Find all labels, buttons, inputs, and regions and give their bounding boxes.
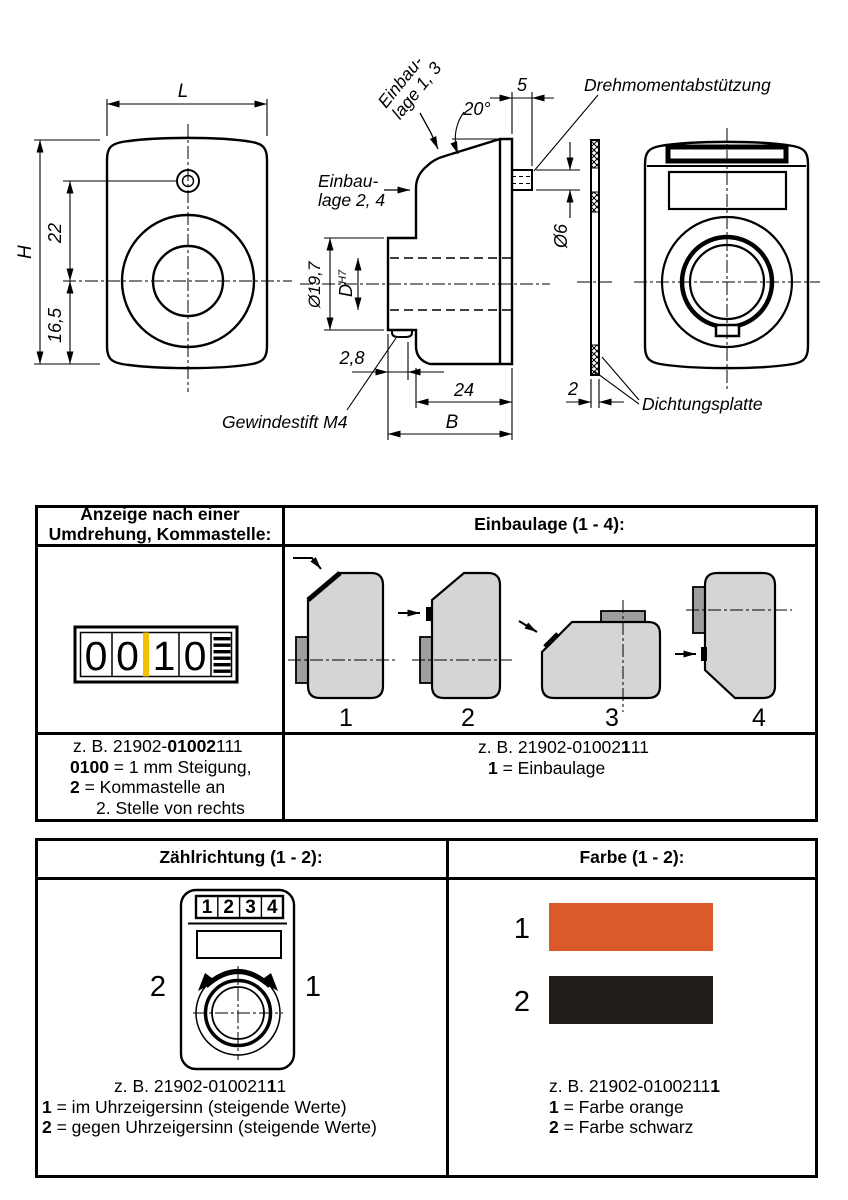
rotation-arrowhead-right xyxy=(260,973,278,991)
side-body-outline xyxy=(388,139,512,364)
dichtungsplatte-label: Dichtungsplatte xyxy=(642,394,763,414)
view-side: Ø19,7 DH7 2,8 24 B Gewindestift M4 xyxy=(222,47,771,440)
dim-label-dia19-7: Ø19,7 xyxy=(305,261,324,309)
torque-pin xyxy=(512,170,532,190)
counter-digit: 1 xyxy=(153,633,176,679)
position-2-nub xyxy=(426,607,433,621)
mini-counter-digit: 3 xyxy=(245,897,256,918)
color-swatch-black xyxy=(549,976,713,1024)
dim-label-2-8: 2,8 xyxy=(338,348,364,368)
technical-drawing-canvas: L H 22 16,5 Ø19,7 xyxy=(0,0,848,1200)
position-3-body xyxy=(542,622,660,698)
position-number: 4 xyxy=(752,704,766,732)
extension-lines xyxy=(591,379,599,408)
position-number: 2 xyxy=(461,704,475,732)
dim-label-22: 22 xyxy=(45,223,65,244)
direction-label-cw: 1 xyxy=(305,971,321,1003)
einbaulage-1-3-arrow xyxy=(420,113,438,149)
drehmoment-label: Drehmomentabstützung xyxy=(584,75,771,95)
angle-label-20: 20° xyxy=(462,99,490,119)
extension-lines xyxy=(536,170,580,190)
counter-digit: 0 xyxy=(116,633,139,679)
position-number: 1 xyxy=(339,704,353,732)
einbaulage-2-4-label: Einbau- lage 2, 4 xyxy=(318,171,385,210)
mini-counter-digit: 4 xyxy=(267,897,278,918)
einbaulage-pictograms: 1 2 3 4 xyxy=(288,558,792,732)
einbaulage-1-3-label: Einbau- lage 1, 3 xyxy=(374,47,446,123)
position-2-body xyxy=(432,573,500,698)
torque-pin-thread-lines xyxy=(512,177,532,184)
dim-label-H: H xyxy=(15,245,36,259)
direction-label-ccw: 2 xyxy=(150,971,166,1003)
mini-counter-digit: 2 xyxy=(223,897,234,918)
farbe-swatches: 1 2 xyxy=(514,903,713,1024)
color-swatch-orange xyxy=(549,903,713,951)
position-number: 3 xyxy=(605,704,619,732)
position-1-arrow xyxy=(293,558,321,569)
knurl-stripes xyxy=(214,637,231,673)
counter-pictogram: 0 0 1 0 xyxy=(75,627,237,682)
dim-label-24: 24 xyxy=(453,380,474,400)
dim-label-D-H7: DH7 xyxy=(336,269,356,297)
counter-digit: 0 xyxy=(184,633,207,679)
color-number: 2 xyxy=(514,986,530,1018)
dial-display-window xyxy=(197,931,281,958)
gewindestift-label: Gewindestift M4 xyxy=(222,412,348,432)
view-front-dimensions: L H 22 16,5 xyxy=(15,81,292,392)
dim-label-5: 5 xyxy=(517,75,528,95)
extension-lines xyxy=(512,92,532,166)
dim-label-2: 2 xyxy=(567,379,578,399)
extension-lines xyxy=(34,140,100,364)
seal-hatch xyxy=(591,140,599,168)
rotation-arrowhead-left xyxy=(198,973,216,991)
counter-digit: 0 xyxy=(85,633,108,679)
dim-label-dia6: Ø6 xyxy=(551,223,571,249)
display-centerlines xyxy=(634,128,820,392)
dichtungsplatte-leaders xyxy=(594,357,639,404)
catalog-page: Anzeige nach einer Umdrehung, Kommastell… xyxy=(0,0,848,1200)
seal-hatch xyxy=(591,345,599,375)
dim-label-16-5: 16,5 xyxy=(45,307,65,343)
seal-hatch xyxy=(591,192,599,212)
drehmoment-leader xyxy=(534,95,598,171)
zaehlrichtung-pictogram: 1 2 3 4 2 1 xyxy=(150,890,321,1069)
position-4-body xyxy=(705,573,775,698)
position-3-arrow xyxy=(519,621,537,632)
dim-label-B: B xyxy=(446,412,459,433)
position-4-nub xyxy=(701,647,707,661)
centerlines xyxy=(63,124,292,392)
view-seal-plate: 2 Dichtungsplatte xyxy=(566,140,763,414)
comma-marker xyxy=(143,633,149,677)
color-number: 1 xyxy=(514,913,530,945)
mini-counter-digit: 1 xyxy=(202,897,213,918)
indicator-body-outline xyxy=(107,138,267,368)
seal-plate-outline xyxy=(591,140,599,375)
dim-label-L: L xyxy=(178,81,189,102)
view-front-display xyxy=(634,128,820,392)
